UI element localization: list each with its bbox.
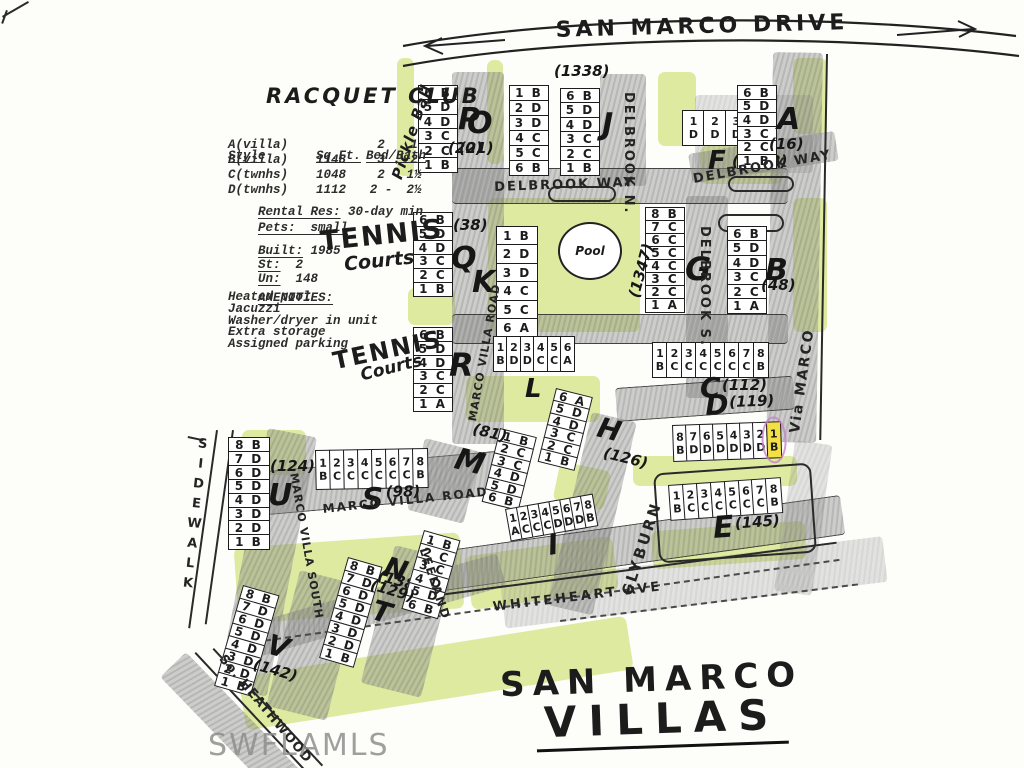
building-E-label: E bbox=[712, 513, 735, 544]
legend-cell: 1148 bbox=[316, 153, 366, 168]
building-O: 1 B2 D3 D4 C5 C6 BO(21) bbox=[509, 85, 549, 176]
legend-cell: B(villa) bbox=[228, 153, 316, 168]
pool: Pool bbox=[558, 222, 622, 280]
unit-L-6A: 6A bbox=[560, 336, 575, 372]
unit-Q-1B: 1 B bbox=[413, 282, 453, 298]
building-B-units: 6 B5 D4 D3 C2 C1 A bbox=[727, 226, 767, 314]
building-D: 8B7D6D5D4D3D2D1BD(119) bbox=[672, 421, 782, 462]
legend-row-2: B(villa)114832 bbox=[228, 153, 432, 168]
unit-F-2D: 2D bbox=[703, 110, 726, 146]
building-A-number: (16) bbox=[769, 135, 804, 153]
building-D-label: D bbox=[705, 391, 729, 420]
street-label-sidewalk: SIDEWALK bbox=[179, 436, 211, 597]
building-K-units: 1 B2 D3 D4 C5 C6 A bbox=[496, 226, 538, 338]
mls-watermark: SWFLAMLS bbox=[208, 728, 390, 763]
unit-U-1B: 1 B bbox=[228, 534, 270, 550]
unit-J-1B: 1 B bbox=[560, 160, 600, 176]
building-R-label: R bbox=[449, 349, 474, 381]
unit-O-6B: 6 B bbox=[509, 160, 549, 177]
building-C: 1B2C3C4C5C6C7C8BC(112) bbox=[652, 342, 769, 378]
building-M: 1 B2 C3 C4 D5 D6 BM(81) bbox=[482, 428, 537, 511]
unit-F-1D: 1D bbox=[682, 110, 705, 146]
unit-K-3D: 3 D bbox=[496, 263, 538, 283]
building-A-units: 6 B5 D4 D3 C2 C1 B bbox=[737, 85, 777, 169]
building-G: 8 B7 C6 C5 C4 C3 C2 C1 AG(1347) bbox=[645, 207, 685, 313]
building-B: 6 B5 D4 D3 C2 C1 AB(48) bbox=[727, 226, 767, 314]
legend-cell: 2 bbox=[366, 138, 396, 153]
building-J-label: J bbox=[602, 110, 613, 140]
building-O-number: (21) bbox=[459, 139, 494, 157]
map-title-line2: VILLAS bbox=[535, 690, 789, 753]
unit-B-1A: 1 A bbox=[727, 298, 767, 314]
legend-table-rows: A(villa)21B(villa)114832C(twnhs)104821½D… bbox=[228, 138, 432, 198]
building-J-number: (1338) bbox=[554, 62, 609, 80]
legend-cell: 2 bbox=[396, 153, 432, 168]
building-J-units: 6 B5 D4 D3 C2 C1 B bbox=[560, 88, 600, 176]
unit-E-8B: 8B bbox=[765, 477, 783, 514]
legend-cell: 1½ bbox=[396, 168, 432, 183]
street-label-delbrook-n: DELBROOK N. bbox=[621, 92, 636, 214]
building-U: 8 B7 D6 D5 D4 D3 D2 D1 BU(124) bbox=[228, 437, 270, 550]
building-J: 6 B5 D4 D3 C2 C1 BJ(1338) bbox=[560, 88, 600, 176]
building-Q-number: (38) bbox=[453, 216, 488, 234]
unit-G-1A: 1 A bbox=[645, 298, 685, 313]
legend-cell: 1 bbox=[396, 138, 432, 153]
pool-label: Pool bbox=[575, 244, 604, 258]
ink-stroke-8 bbox=[1, 10, 8, 24]
legend-cell: 3 bbox=[366, 153, 396, 168]
unit-C-8B: 8B bbox=[753, 342, 769, 378]
unit-R-1A: 1 A bbox=[413, 397, 453, 413]
unit-K-1B: 1 B bbox=[496, 226, 538, 246]
building-S: 1B2C3C4C5C6C7C8BS(98) bbox=[315, 448, 429, 490]
building-K: 1 B2 D3 D4 C5 C6 AK bbox=[496, 226, 538, 338]
legend-row-1: A(villa)21 bbox=[228, 138, 432, 153]
building-E: 1B2C3C4C5C6C7C8BE(145) bbox=[668, 477, 783, 521]
building-L-label: L bbox=[525, 376, 542, 402]
map-canvas: 6 B5 D4 D3 C2 C1 BP(20)1 B2 D3 D4 C5 C6 … bbox=[0, 0, 1024, 768]
building-O-units: 1 B2 D3 D4 C5 C6 B bbox=[509, 85, 549, 176]
building-U-units: 8 B7 D6 D5 D4 D3 D2 D1 B bbox=[228, 437, 270, 550]
building-B-number: (48) bbox=[761, 276, 796, 294]
building-D-units: 8B7D6D5D4D3D2D1B bbox=[672, 421, 782, 462]
legend-cell bbox=[316, 138, 366, 153]
unit-K-5C: 5 C bbox=[496, 300, 538, 320]
unit-D-1B-highlighted: 1B bbox=[766, 421, 782, 459]
building-O-label: O bbox=[467, 109, 493, 139]
building-A: 6 B5 D4 D3 C2 C1 BA(16) bbox=[737, 85, 777, 169]
unit-K-2D: 2 D bbox=[496, 244, 538, 264]
legend-cell: 1048 bbox=[316, 168, 366, 183]
building-D-number: (119) bbox=[729, 391, 775, 411]
legend-club-title: RACQUET CLUB bbox=[266, 84, 481, 108]
building-L-units: 1B2D3D4C5C6A bbox=[493, 336, 575, 372]
legend-row-3: C(twnhs)104821½ bbox=[228, 168, 432, 183]
building-L: 1B2D3D4C5C6AL bbox=[493, 336, 575, 372]
legend-cell: A(villa) bbox=[228, 138, 316, 153]
building-A-label: A bbox=[777, 105, 800, 135]
legend-cell: C(twnhs) bbox=[228, 168, 316, 183]
building-E-number: (145) bbox=[734, 511, 780, 532]
street-label-delbrook-s: DELBROOK S. bbox=[697, 226, 712, 347]
legend-cell: 2 bbox=[366, 168, 396, 183]
